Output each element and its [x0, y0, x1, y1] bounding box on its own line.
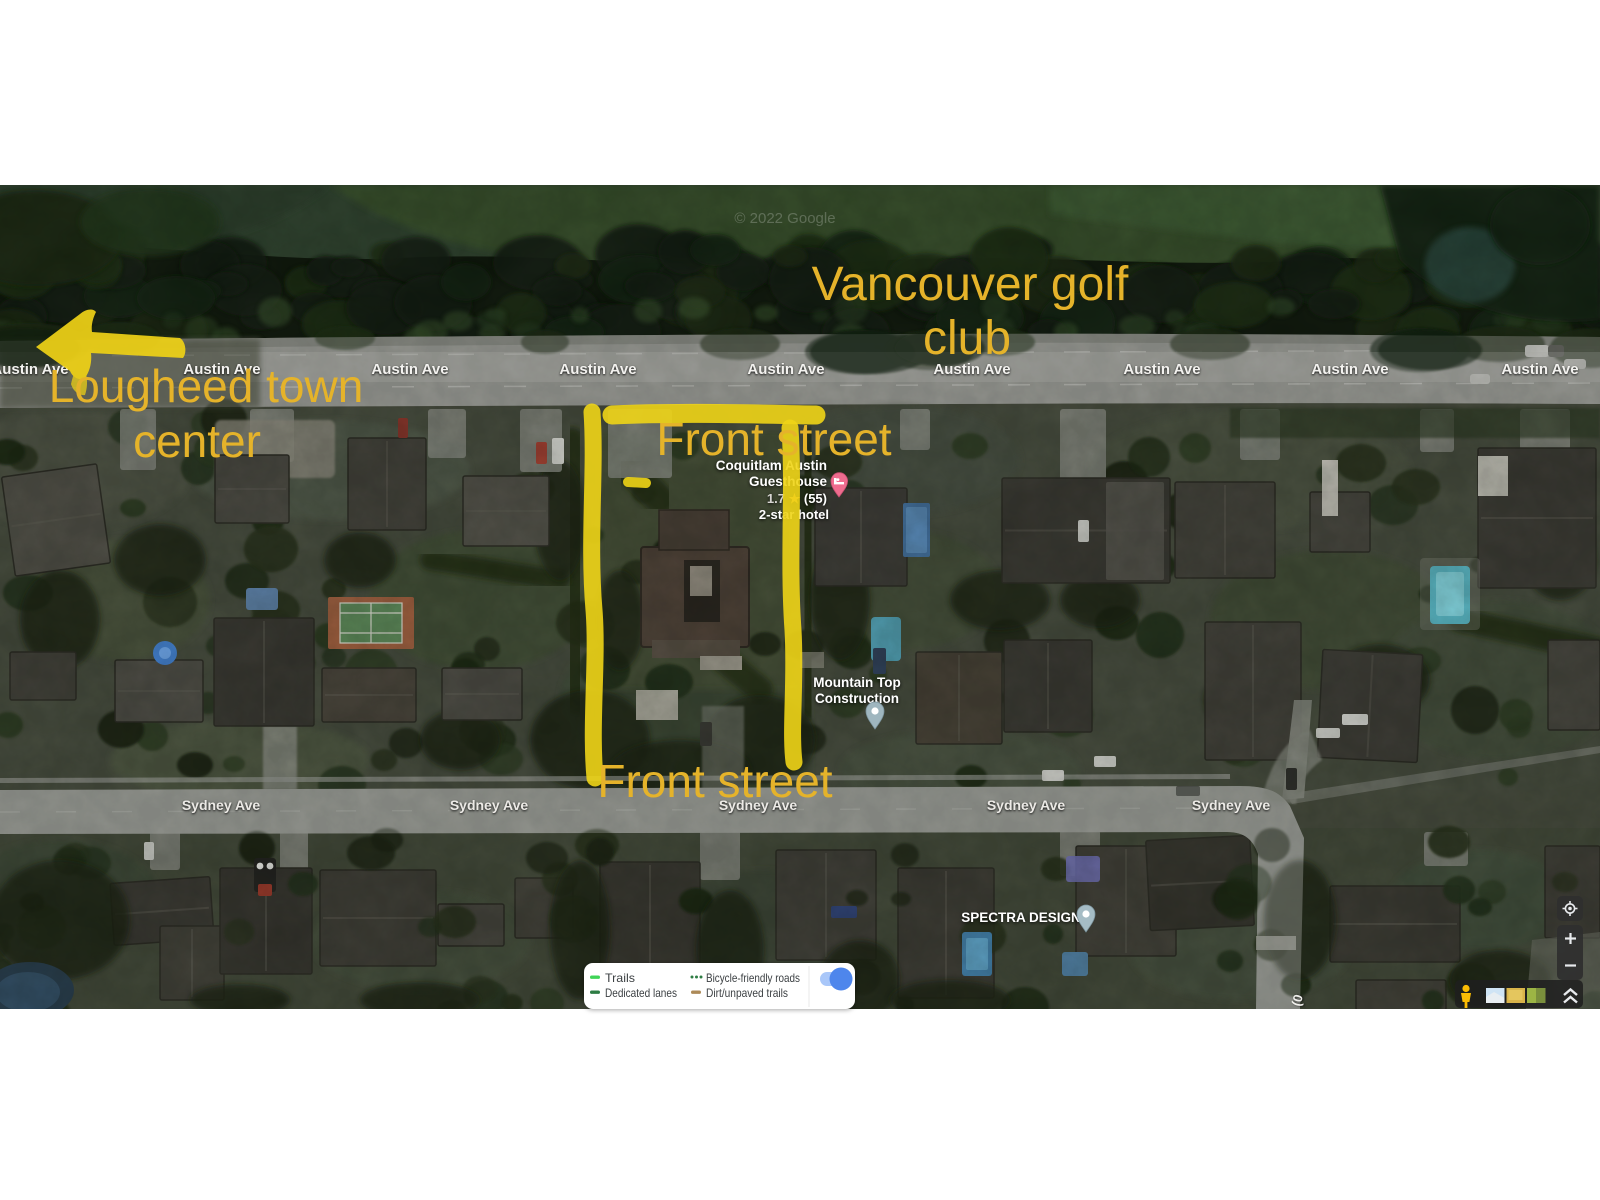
- svg-text:Dedicated lanes: Dedicated lanes: [605, 986, 677, 1000]
- svg-text:Dirt/unpaved trails: Dirt/unpaved trails: [706, 986, 788, 1000]
- svg-text:Bicycle-friendly roads: Bicycle-friendly roads: [706, 971, 800, 985]
- svg-text:Austin Ave: Austin Ave: [747, 361, 824, 378]
- svg-text:© 2022 Google: © 2022 Google: [734, 210, 835, 227]
- svg-text:center: center: [133, 415, 261, 467]
- svg-text:Sydney Ave: Sydney Ave: [1192, 797, 1271, 813]
- svg-text:Austin Ave: Austin Ave: [371, 361, 448, 378]
- svg-text:Sydney Ave: Sydney Ave: [450, 797, 529, 813]
- svg-text:Mountain Top: Mountain Top: [813, 675, 900, 690]
- svg-text:Sydney Ave: Sydney Ave: [987, 797, 1066, 813]
- svg-text:Lougheed town: Lougheed town: [49, 360, 364, 412]
- svg-text:Front street: Front street: [597, 755, 832, 807]
- svg-text:Sydney Ave: Sydney Ave: [182, 797, 261, 813]
- svg-text:club: club: [923, 312, 1011, 365]
- svg-text:Trails: Trails: [605, 971, 635, 985]
- svg-text:Front street: Front street: [656, 413, 891, 465]
- svg-text:Construction: Construction: [815, 691, 899, 706]
- svg-text:Austin Ave: Austin Ave: [559, 361, 636, 378]
- svg-text:SPECTRA DESIGN: SPECTRA DESIGN: [961, 910, 1081, 925]
- svg-text:Austin Ave: Austin Ave: [1123, 361, 1200, 378]
- svg-text:Vancouver golf: Vancouver golf: [812, 258, 1129, 311]
- svg-text:Austin Ave: Austin Ave: [1501, 361, 1578, 378]
- svg-text:Austin Ave: Austin Ave: [1311, 361, 1388, 378]
